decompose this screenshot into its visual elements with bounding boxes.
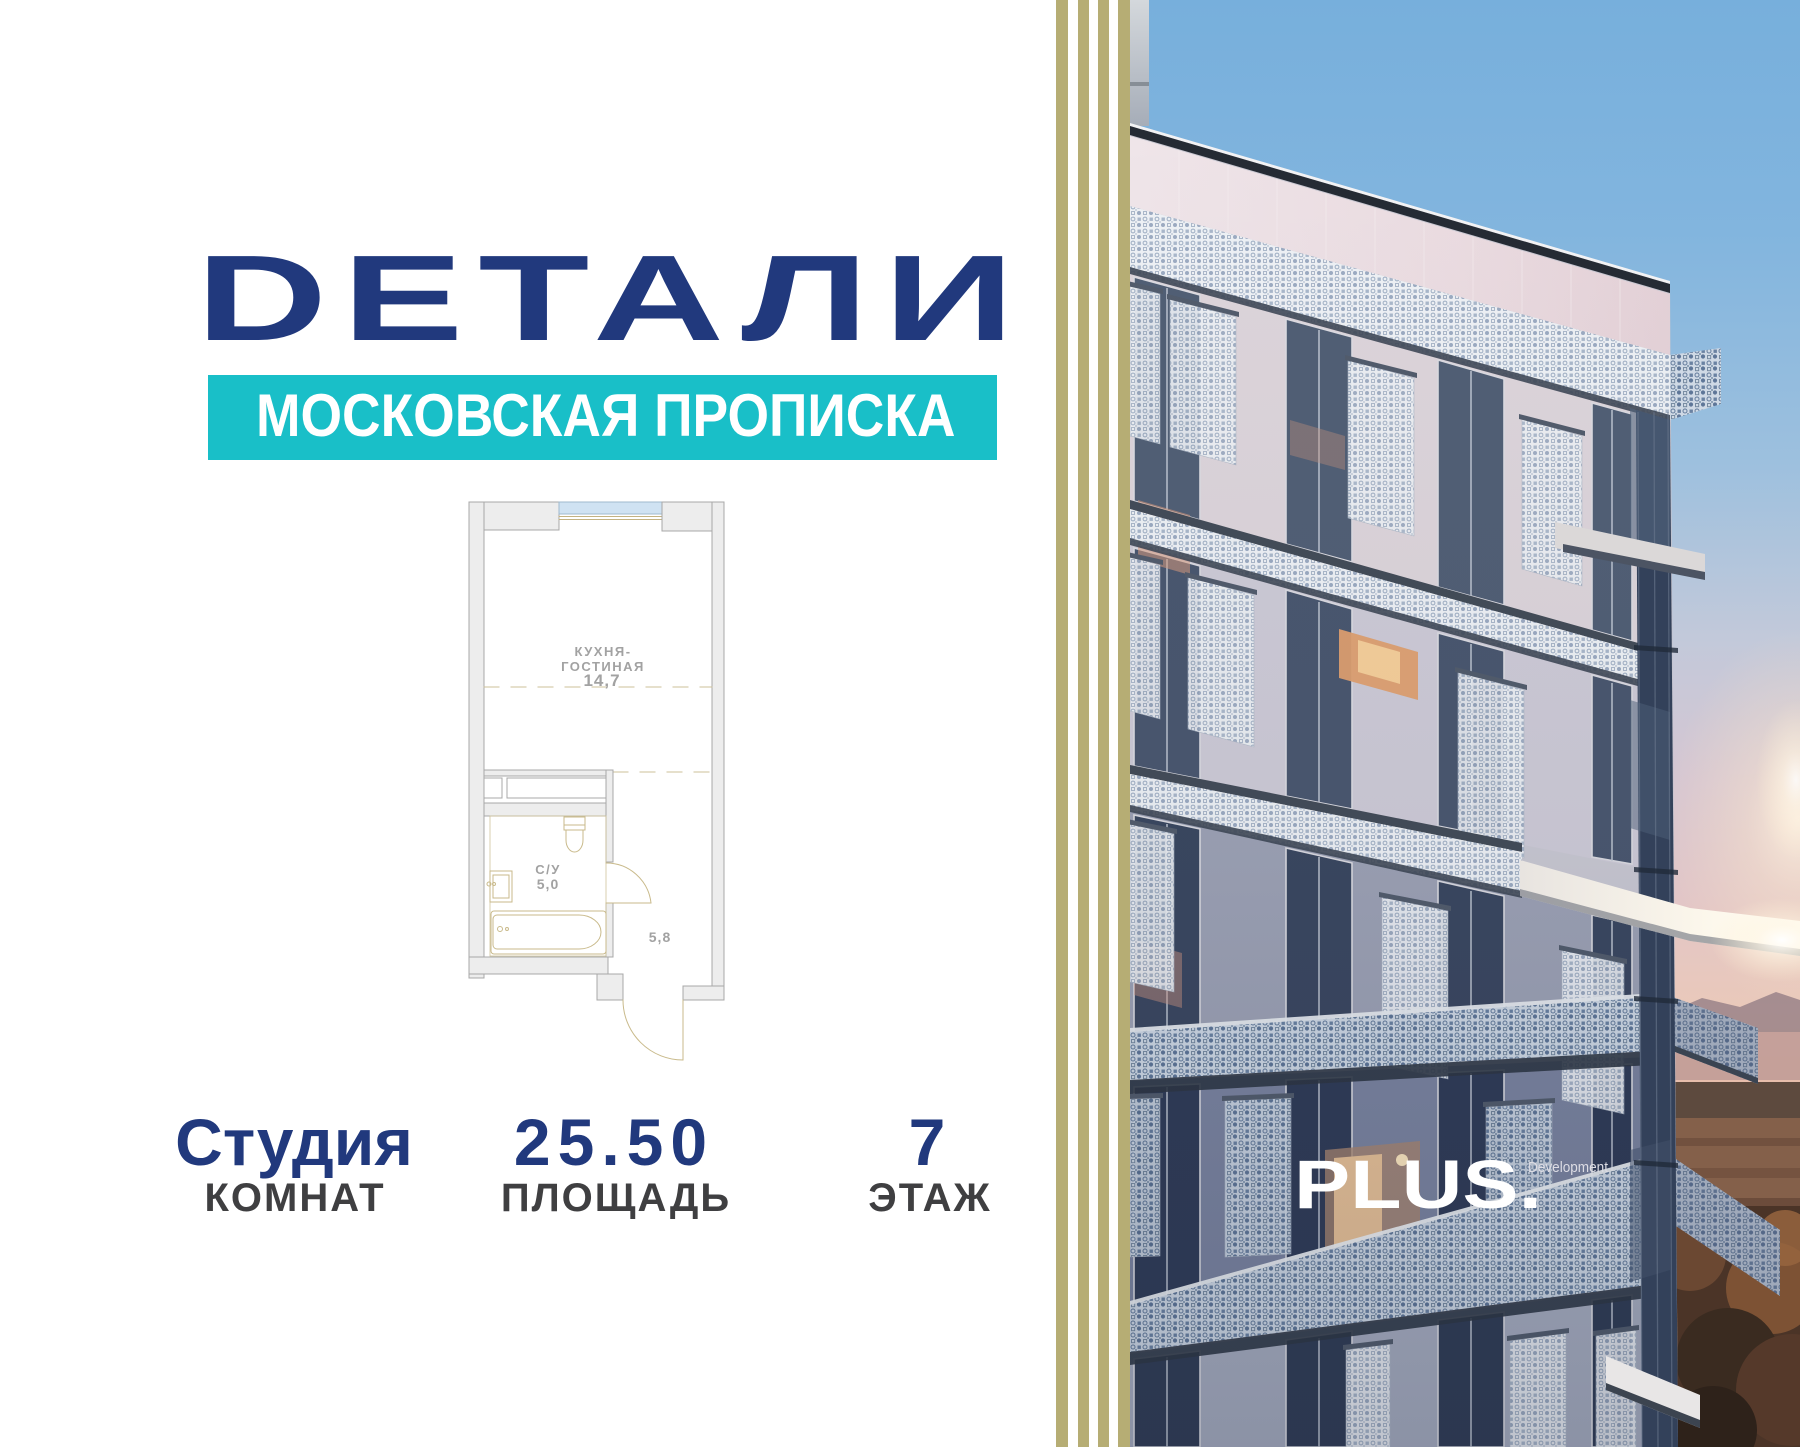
svg-text:Development: Development [1528, 1159, 1609, 1176]
svg-text:14,7: 14,7 [583, 671, 620, 690]
svg-text:PLUS.: PLUS. [1294, 1146, 1542, 1223]
svg-text:КУХНЯ-: КУХНЯ- [574, 644, 631, 659]
svg-text:С/У: С/У [535, 862, 561, 877]
svg-text:5,8: 5,8 [649, 929, 671, 945]
svg-text:5,0: 5,0 [537, 876, 559, 892]
